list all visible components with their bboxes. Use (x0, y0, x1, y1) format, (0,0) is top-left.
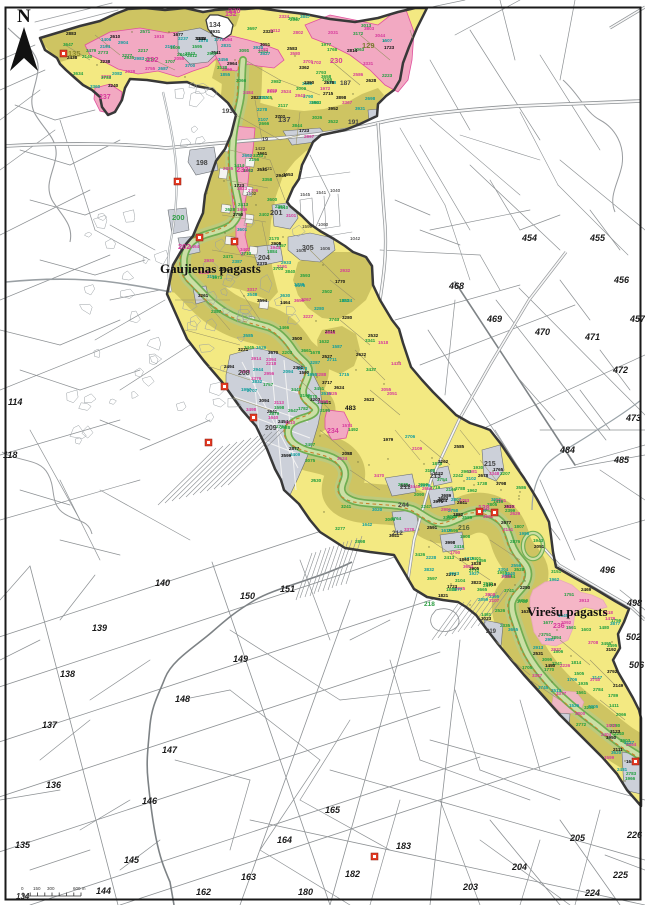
svg-text:138: 138 (60, 669, 75, 679)
svg-text:202: 202 (178, 242, 191, 251)
svg-text:2879: 2879 (269, 411, 280, 416)
svg-text:213: 213 (430, 473, 441, 480)
svg-text:1642: 1642 (362, 522, 373, 527)
svg-text:3548: 3548 (247, 292, 258, 297)
svg-text:3788: 3788 (455, 486, 466, 491)
svg-text:3397: 3397 (443, 515, 454, 520)
svg-text:496: 496 (599, 565, 616, 575)
svg-text:200: 200 (172, 213, 185, 222)
svg-text:3025: 3025 (327, 391, 338, 396)
svg-text:1526: 1526 (569, 703, 580, 708)
svg-text:3914: 3914 (251, 356, 262, 361)
svg-text:1706: 1706 (567, 677, 578, 682)
svg-text:1930: 1930 (473, 465, 484, 470)
svg-text:3426: 3426 (415, 552, 426, 557)
svg-text:484: 484 (559, 445, 575, 455)
svg-text:134: 134 (209, 22, 221, 29)
svg-text:2494: 2494 (224, 364, 235, 369)
svg-text:140: 140 (155, 578, 170, 588)
svg-text:3470: 3470 (374, 473, 385, 478)
svg-text:1422: 1422 (255, 146, 266, 151)
svg-text:3016: 3016 (258, 95, 269, 100)
svg-text:2571: 2571 (140, 29, 151, 34)
svg-text:3277: 3277 (335, 526, 346, 531)
svg-text:3044: 3044 (375, 33, 386, 38)
svg-text:1768: 1768 (327, 47, 338, 52)
svg-text:1545: 1545 (300, 192, 311, 197)
svg-text:3700: 3700 (185, 63, 196, 68)
svg-text:3800: 3800 (575, 711, 586, 716)
svg-text:2913: 2913 (533, 645, 544, 650)
svg-text:1060: 1060 (318, 222, 329, 227)
svg-text:N: N (17, 6, 31, 27)
svg-text:3634: 3634 (73, 71, 84, 76)
svg-text:150: 150 (240, 591, 255, 601)
svg-text:456: 456 (613, 275, 630, 285)
svg-text:2943: 2943 (295, 93, 306, 98)
svg-text:2623: 2623 (364, 397, 375, 402)
svg-text:2194: 2194 (100, 44, 111, 49)
svg-text:165: 165 (325, 805, 341, 815)
svg-text:1949: 1949 (237, 207, 248, 212)
svg-text:2117: 2117 (278, 103, 288, 108)
svg-text:1632: 1632 (319, 339, 330, 344)
svg-text:198: 198 (196, 160, 208, 167)
svg-text:1603: 1603 (581, 627, 592, 632)
svg-text:1908: 1908 (460, 534, 471, 539)
svg-text:471: 471 (584, 332, 600, 342)
svg-text:2028: 2028 (125, 69, 136, 74)
svg-text:2484: 2484 (243, 90, 254, 95)
svg-text:3091: 3091 (239, 48, 250, 53)
svg-text:244: 244 (398, 502, 409, 509)
svg-text:2226: 2226 (560, 663, 571, 668)
svg-text:219: 219 (486, 629, 497, 635)
svg-text:2964: 2964 (227, 61, 238, 66)
svg-text:162: 162 (196, 887, 211, 897)
svg-text:3755: 3755 (145, 66, 156, 71)
svg-text:3101: 3101 (286, 213, 297, 218)
svg-text:3172: 3172 (353, 31, 364, 36)
svg-text:2877: 2877 (289, 446, 300, 451)
svg-text:3701: 3701 (303, 59, 314, 64)
svg-text:2203: 2203 (282, 350, 293, 355)
svg-text:225: 225 (612, 870, 629, 880)
svg-text:2532: 2532 (368, 333, 379, 338)
svg-text:1966: 1966 (625, 776, 636, 781)
svg-text:3840: 3840 (285, 269, 296, 274)
svg-text:149: 149 (233, 654, 248, 664)
svg-text:3498: 3498 (246, 407, 257, 412)
svg-text:2629: 2629 (510, 511, 521, 516)
svg-text:3630: 3630 (280, 293, 291, 298)
svg-text:2278: 2278 (257, 107, 268, 112)
svg-text:3138: 3138 (217, 65, 228, 70)
svg-text:3123: 3123 (610, 729, 621, 734)
svg-text:2883: 2883 (66, 31, 77, 36)
svg-text:3658: 3658 (318, 399, 329, 404)
svg-text:1595: 1595 (192, 44, 203, 49)
svg-text:3832: 3832 (424, 567, 435, 572)
svg-text:3335: 3335 (195, 36, 206, 41)
svg-text:218: 218 (424, 601, 435, 608)
svg-text:1619: 1619 (441, 528, 452, 533)
svg-text:2502: 2502 (322, 289, 333, 294)
svg-text:2773: 2773 (98, 50, 109, 55)
svg-text:1723: 1723 (234, 183, 245, 188)
svg-text:2402: 2402 (259, 212, 270, 217)
svg-text:137: 137 (278, 115, 291, 124)
svg-text:1893: 1893 (459, 557, 470, 562)
svg-text:1599: 1599 (302, 224, 313, 229)
svg-text:136: 136 (46, 780, 62, 790)
svg-text:2090: 2090 (414, 492, 425, 497)
svg-text:305: 305 (302, 245, 314, 252)
svg-text:3241: 3241 (341, 504, 352, 509)
svg-text:1807: 1807 (514, 524, 525, 529)
svg-text:502: 502 (626, 632, 641, 642)
svg-text:3240: 3240 (108, 83, 119, 88)
svg-text:3898: 3898 (336, 95, 347, 100)
svg-text:2715: 2715 (323, 91, 334, 96)
svg-text:1821: 1821 (438, 593, 449, 598)
svg-text:2527: 2527 (322, 354, 333, 359)
svg-text:3593: 3593 (300, 273, 311, 278)
svg-text:2653: 2653 (422, 486, 433, 491)
svg-text:469: 469 (486, 314, 502, 324)
svg-text:3205: 3205 (588, 704, 599, 709)
svg-text:1505: 1505 (574, 671, 585, 676)
svg-text:3717: 3717 (322, 380, 333, 385)
svg-text:3456: 3456 (218, 57, 229, 62)
svg-text:2898: 2898 (355, 539, 366, 544)
svg-text:2134: 2134 (342, 298, 353, 303)
svg-text:3823: 3823 (471, 580, 482, 585)
svg-text:3287: 3287 (310, 360, 321, 365)
svg-text:2793: 2793 (316, 70, 327, 75)
svg-text:1935: 1935 (578, 681, 589, 686)
svg-text:193: 193 (222, 108, 233, 115)
svg-text:3580: 3580 (290, 51, 301, 56)
svg-text:2391: 2391 (293, 365, 304, 370)
svg-text:2904: 2904 (118, 40, 129, 45)
svg-text:1481: 1481 (481, 612, 492, 617)
svg-text:2149: 2149 (613, 683, 624, 688)
svg-text:151: 151 (280, 584, 295, 594)
svg-text:1738: 1738 (477, 481, 488, 486)
svg-text:203: 203 (462, 882, 478, 892)
svg-text:3337: 3337 (532, 673, 543, 678)
svg-text:1943: 1943 (533, 538, 544, 543)
svg-text:2141: 2141 (503, 527, 514, 532)
svg-text:1757: 1757 (263, 382, 274, 387)
svg-text:3409: 3409 (290, 452, 301, 457)
svg-text:3280: 3280 (342, 315, 353, 320)
svg-text:3844: 3844 (292, 123, 303, 128)
svg-text:1751: 1751 (564, 592, 575, 597)
svg-text:1502: 1502 (246, 191, 257, 196)
svg-text:2944: 2944 (276, 173, 287, 178)
svg-text:3670: 3670 (268, 350, 279, 355)
svg-text:145: 145 (124, 855, 140, 865)
svg-text:3261: 3261 (198, 293, 209, 298)
svg-text:2784: 2784 (593, 687, 604, 692)
svg-text:212: 212 (392, 530, 403, 537)
svg-text:3703: 3703 (273, 266, 284, 271)
svg-text:457: 457 (629, 314, 645, 324)
svg-text:180: 180 (298, 887, 313, 897)
svg-text:Gaujienas pagasts: Gaujienas pagasts (160, 261, 261, 276)
svg-text:146: 146 (142, 796, 158, 806)
svg-text:2706: 2706 (405, 434, 416, 439)
svg-text:3104: 3104 (455, 578, 466, 583)
svg-text:2059: 2059 (478, 597, 489, 602)
svg-text:3931: 3931 (210, 29, 221, 34)
svg-text:2413: 2413 (444, 555, 455, 560)
svg-text:233: 233 (236, 165, 249, 174)
svg-text:3066: 3066 (236, 78, 247, 83)
svg-text:1464: 1464 (280, 300, 291, 305)
svg-text:1962: 1962 (467, 488, 478, 493)
svg-text:1790: 1790 (450, 550, 461, 555)
svg-text:1507: 1507 (382, 38, 393, 43)
svg-text:3913: 3913 (579, 598, 590, 603)
svg-text:2678: 2678 (478, 473, 489, 478)
svg-text:3195: 3195 (320, 408, 331, 413)
svg-text:2933: 2933 (281, 260, 292, 265)
svg-text:3113: 3113 (274, 400, 284, 405)
svg-text:135: 135 (68, 49, 81, 58)
svg-text:3540: 3540 (505, 571, 516, 576)
svg-text:3358: 3358 (262, 177, 273, 182)
svg-text:3877: 3877 (610, 621, 621, 626)
svg-text:3026: 3026 (312, 115, 323, 120)
svg-text:1561: 1561 (566, 625, 577, 630)
svg-text:473: 473 (625, 413, 641, 423)
svg-text:2831: 2831 (221, 43, 232, 48)
svg-text:3447: 3447 (291, 387, 302, 392)
svg-text:3741: 3741 (504, 588, 515, 593)
svg-text:2677: 2677 (501, 520, 512, 525)
svg-text:3655: 3655 (508, 627, 519, 632)
svg-text:3783: 3783 (101, 75, 112, 80)
svg-text:139: 139 (92, 623, 107, 633)
svg-text:3331: 3331 (363, 61, 374, 66)
svg-text:2055: 2055 (174, 56, 185, 61)
svg-text:1770: 1770 (335, 279, 346, 284)
svg-text:2583: 2583 (287, 46, 298, 51)
svg-text:3020: 3020 (372, 507, 383, 512)
svg-text:3647: 3647 (63, 42, 74, 47)
svg-text:3599: 3599 (281, 453, 292, 458)
svg-text:3832: 3832 (252, 379, 263, 384)
svg-text:2591: 2591 (427, 525, 438, 530)
svg-text:3751: 3751 (541, 632, 552, 637)
svg-text:2228: 2228 (426, 555, 437, 560)
svg-text:1510: 1510 (285, 420, 296, 425)
svg-text:1480: 1480 (599, 625, 610, 630)
svg-text:2628: 2628 (225, 207, 236, 212)
svg-text:3689: 3689 (441, 493, 452, 498)
svg-text:2088: 2088 (342, 451, 353, 456)
svg-text:2907: 2907 (207, 51, 218, 56)
svg-text:2585: 2585 (454, 444, 465, 449)
svg-text:1587: 1587 (332, 344, 343, 349)
svg-text:2217: 2217 (138, 48, 149, 53)
svg-text:2586: 2586 (353, 72, 364, 77)
svg-text:3312: 3312 (270, 28, 281, 33)
svg-text:3600: 3600 (267, 197, 278, 202)
svg-text:2630: 2630 (311, 478, 322, 483)
svg-text:1411: 1411 (609, 703, 619, 708)
svg-text:164: 164 (277, 835, 292, 845)
svg-text:144: 144 (96, 886, 111, 896)
svg-text:182: 182 (345, 869, 360, 879)
svg-text:454: 454 (521, 233, 537, 243)
svg-text:129: 129 (362, 41, 375, 50)
svg-text:1677: 1677 (173, 32, 184, 37)
svg-text:483: 483 (345, 405, 356, 412)
svg-text:2750: 2750 (233, 212, 244, 217)
svg-text:2497: 2497 (305, 442, 316, 447)
svg-text:3055: 3055 (381, 387, 392, 392)
svg-text:2218: 2218 (266, 361, 277, 366)
svg-text:3589: 3589 (462, 515, 473, 520)
svg-text:3952: 3952 (328, 106, 339, 111)
svg-text:506: 506 (629, 660, 645, 670)
svg-text:3192: 3192 (606, 647, 617, 652)
svg-text:3923: 3923 (449, 571, 460, 576)
svg-text:1723: 1723 (384, 45, 395, 50)
svg-text:1986: 1986 (519, 531, 530, 536)
svg-text:2937: 2937 (551, 647, 562, 652)
svg-text:3367: 3367 (342, 100, 353, 105)
svg-text:3903: 3903 (620, 738, 631, 743)
svg-text:2983: 2983 (134, 56, 145, 61)
svg-text:1518: 1518 (378, 340, 389, 345)
svg-text:2140: 2140 (82, 54, 93, 59)
svg-text:236: 236 (553, 623, 565, 630)
svg-text:1855: 1855 (220, 72, 231, 77)
svg-text:3950: 3950 (606, 735, 617, 740)
svg-text:2223: 2223 (382, 73, 393, 78)
svg-text:3009: 3009 (296, 86, 307, 91)
svg-text:3008: 3008 (385, 517, 396, 522)
svg-text:3803: 3803 (364, 26, 375, 31)
svg-text:3280: 3280 (314, 306, 325, 311)
svg-text:3745: 3745 (538, 685, 549, 690)
svg-text:3586: 3586 (516, 485, 527, 490)
svg-text:1691: 1691 (505, 504, 516, 509)
svg-text:1506: 1506 (170, 45, 181, 50)
svg-text:3194: 3194 (222, 37, 233, 42)
svg-text:2247: 2247 (421, 504, 432, 509)
svg-text:3971: 3971 (433, 499, 444, 504)
svg-text:1464: 1464 (189, 244, 200, 249)
svg-text:2957: 2957 (267, 89, 278, 94)
svg-text:224: 224 (584, 888, 600, 898)
svg-text:3528: 3528 (514, 567, 525, 572)
svg-text:2662: 2662 (242, 153, 253, 158)
svg-text:216: 216 (458, 525, 470, 532)
svg-text:2390: 2390 (304, 80, 315, 85)
svg-text:2698: 2698 (365, 96, 376, 101)
svg-text:1042: 1042 (350, 236, 361, 241)
svg-text:2666: 2666 (259, 121, 270, 126)
svg-text:3792: 3792 (607, 669, 618, 674)
svg-text:215: 215 (484, 461, 496, 468)
svg-text:3221: 3221 (238, 347, 249, 352)
svg-text:3402: 3402 (240, 247, 251, 252)
svg-text:204: 204 (511, 862, 527, 872)
svg-text:3479: 3479 (86, 48, 97, 53)
svg-text:600 m: 600 m (73, 886, 86, 891)
svg-text:3378: 3378 (404, 527, 415, 532)
svg-text:1466: 1466 (279, 325, 290, 330)
svg-text:19: 19 (262, 137, 268, 143)
svg-text:472: 472 (612, 365, 628, 375)
svg-text:3362: 3362 (299, 65, 310, 70)
svg-text:2305: 2305 (223, 166, 234, 171)
svg-text:1599: 1599 (604, 755, 615, 760)
svg-text:150: 150 (33, 886, 41, 891)
svg-text:2416: 2416 (454, 544, 465, 549)
svg-text:2897: 2897 (304, 134, 315, 139)
svg-text:1715: 1715 (339, 372, 350, 377)
svg-text:2571: 2571 (483, 581, 494, 586)
svg-text:3697: 3697 (247, 26, 258, 31)
svg-text:2066: 2066 (616, 712, 627, 717)
svg-text:470: 470 (534, 327, 550, 337)
svg-text:2109: 2109 (412, 446, 423, 451)
svg-text:1450: 1450 (545, 663, 556, 668)
svg-text:1927: 1927 (469, 571, 480, 576)
svg-text:183: 183 (396, 841, 411, 851)
svg-text:1629: 1629 (256, 345, 267, 350)
svg-text:3102: 3102 (466, 476, 477, 481)
svg-text:2802: 2802 (293, 30, 304, 35)
svg-text:2531: 2531 (533, 651, 544, 656)
svg-text:Virešu pagasts: Virešu pagasts (527, 604, 608, 619)
svg-text:1705: 1705 (522, 665, 533, 670)
svg-text:2647: 2647 (288, 408, 299, 413)
svg-text:3341: 3341 (365, 338, 376, 343)
svg-text:3594: 3594 (257, 298, 268, 303)
svg-text:1782: 1782 (298, 406, 309, 411)
svg-text:2170: 2170 (269, 236, 280, 241)
svg-text:1889: 1889 (446, 587, 457, 592)
svg-text:3500: 3500 (292, 336, 303, 341)
svg-text:2526: 2526 (495, 608, 506, 613)
svg-text:1421: 1421 (262, 166, 273, 171)
svg-text:2031: 2031 (328, 30, 339, 35)
svg-text:3798: 3798 (496, 481, 507, 486)
svg-text:3708: 3708 (588, 640, 599, 645)
svg-text:468: 468 (448, 281, 464, 291)
svg-text:3954: 3954 (325, 330, 336, 335)
svg-text:3659: 3659 (294, 298, 305, 303)
svg-text:1955: 1955 (307, 372, 318, 377)
svg-text:2991: 2991 (441, 507, 452, 512)
svg-text:3227: 3227 (303, 314, 314, 319)
svg-text:3051: 3051 (260, 42, 271, 47)
svg-text:1434: 1434 (391, 361, 402, 366)
svg-text:2687: 2687 (158, 66, 169, 71)
svg-text:3238: 3238 (100, 59, 111, 64)
svg-text:230: 230 (330, 56, 343, 65)
svg-text:3522: 3522 (328, 119, 339, 124)
svg-text:2707: 2707 (247, 388, 258, 393)
